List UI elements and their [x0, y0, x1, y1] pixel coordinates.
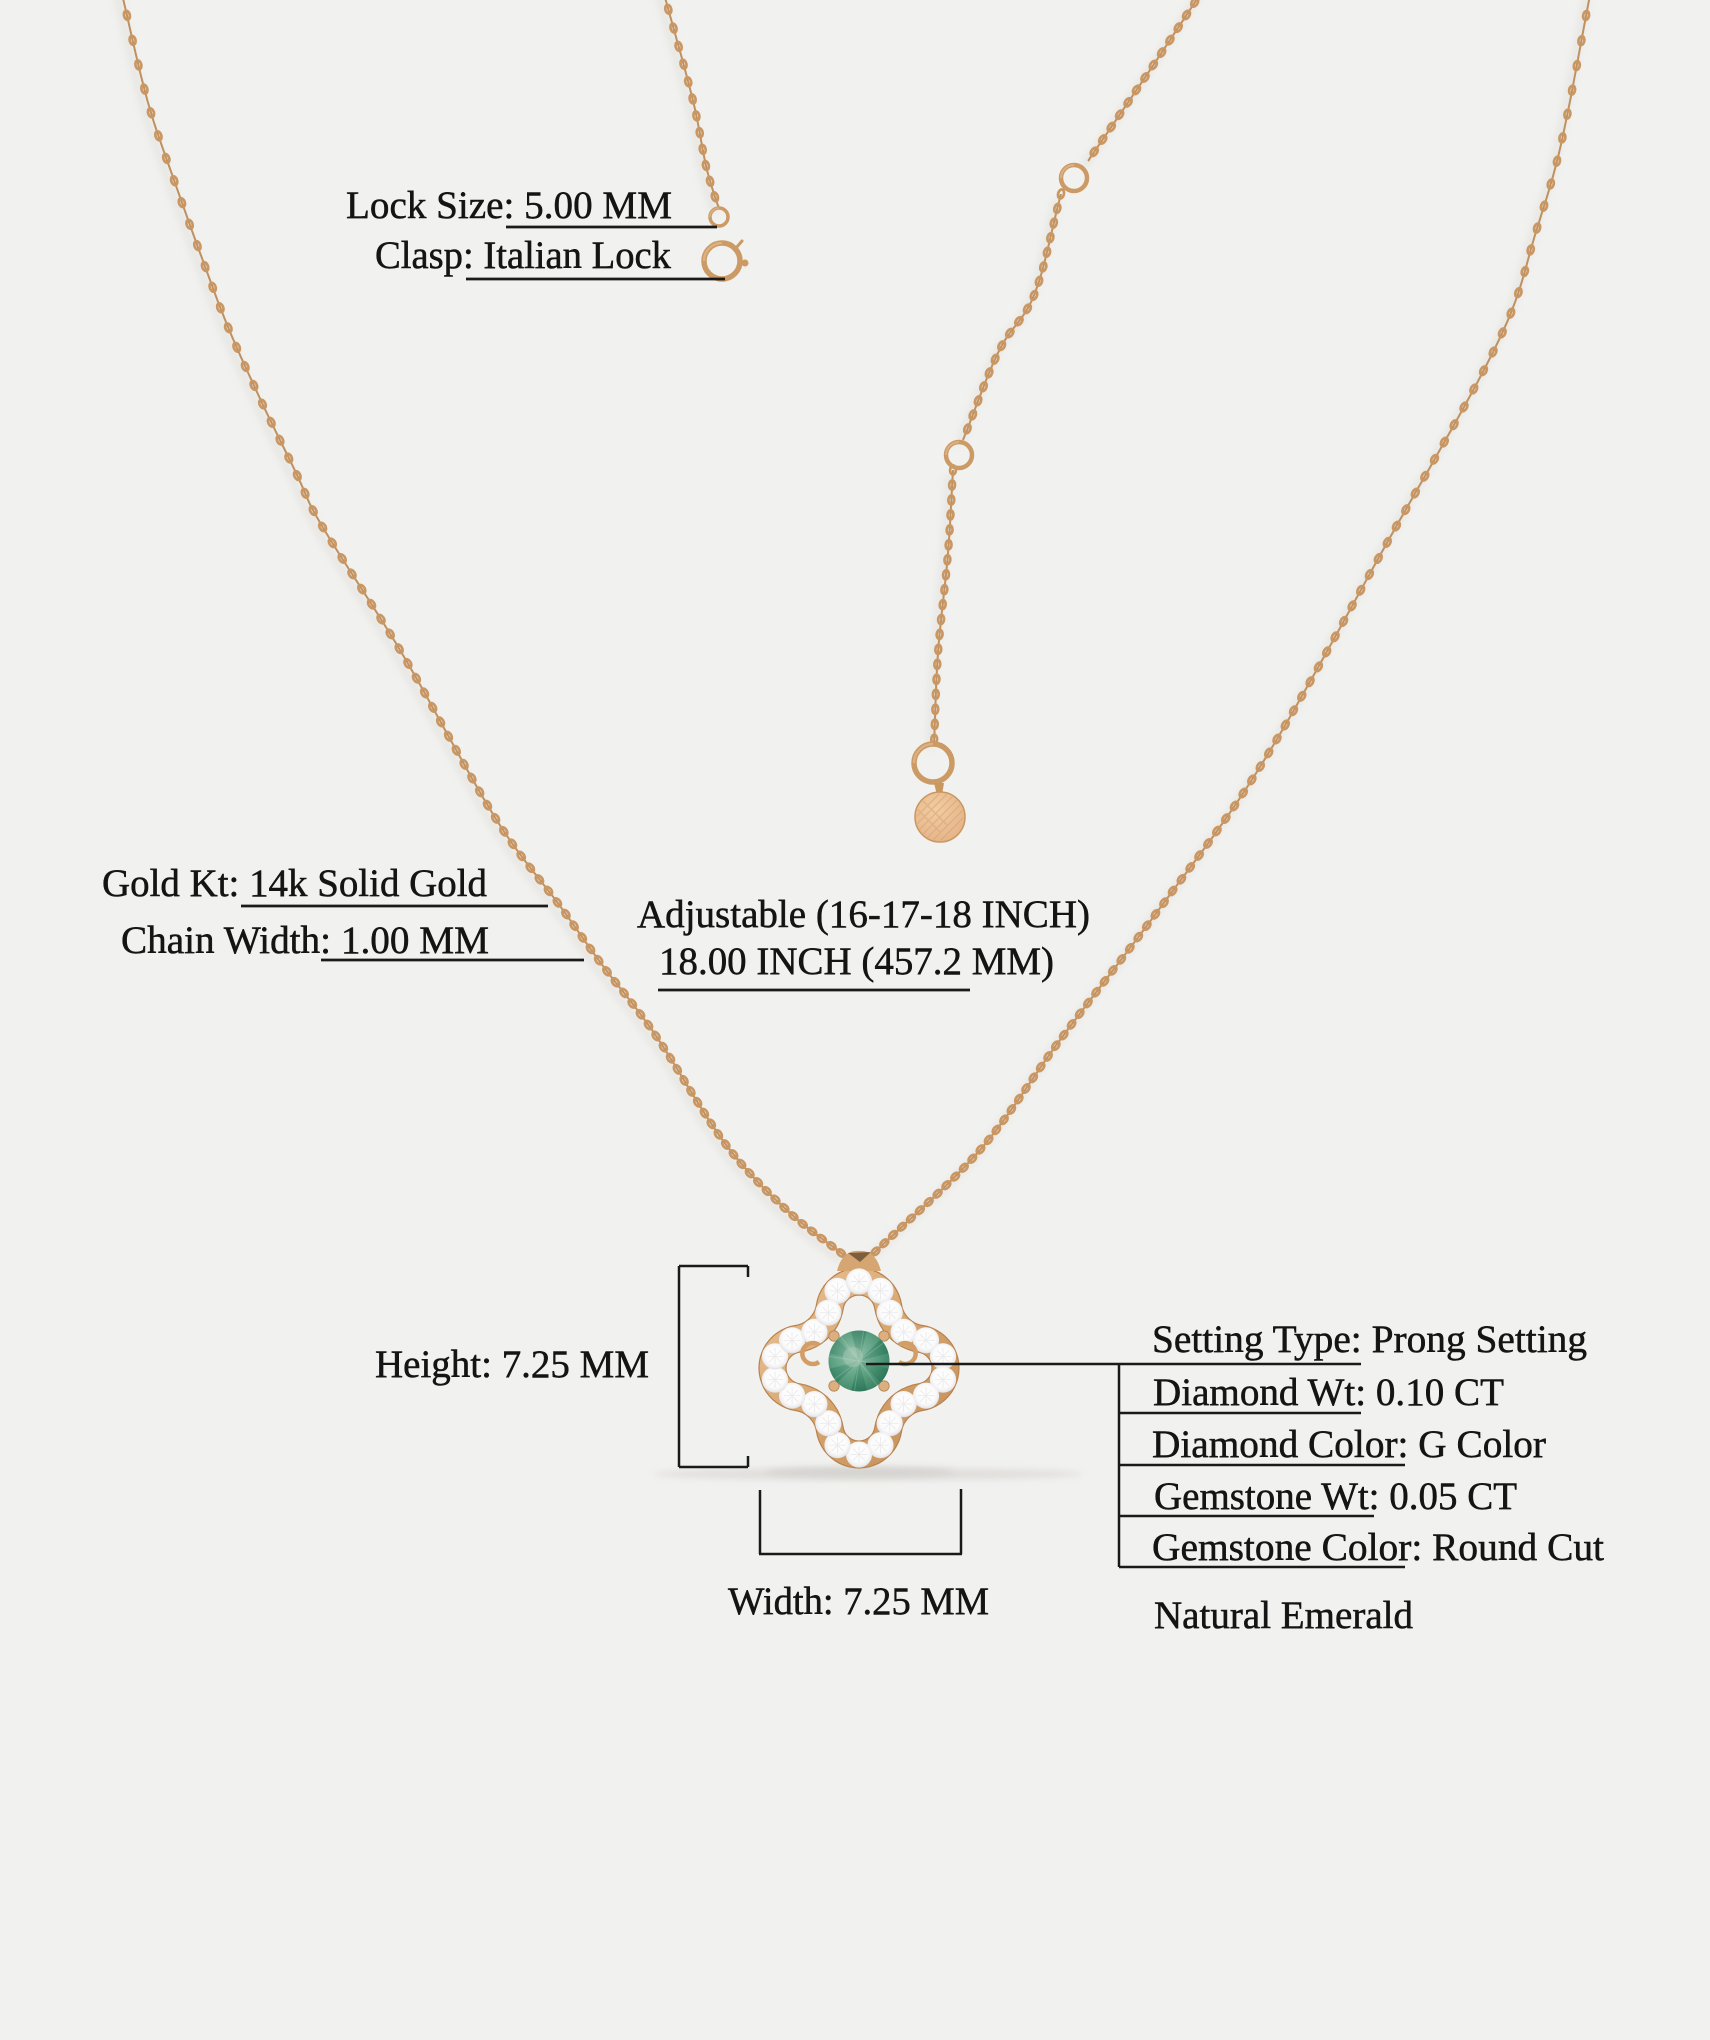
svg-text:Natural Emerald: Natural Emerald	[1154, 1594, 1413, 1637]
svg-text:Gold Kt: 14k Solid Gold: Gold Kt: 14k Solid Gold	[102, 862, 487, 905]
svg-text:Adjustable (16-17-18 INCH): Adjustable (16-17-18 INCH)	[637, 893, 1090, 936]
svg-text:Gemstone Wt: 0.05 CT: Gemstone Wt: 0.05 CT	[1154, 1475, 1517, 1518]
svg-text:Chain Width: 1.00 MM: Chain Width: 1.00 MM	[121, 919, 489, 962]
svg-text:Diamond Wt: 0.10 CT: Diamond Wt: 0.10 CT	[1153, 1371, 1504, 1414]
svg-text:Gemstone Color: Round Cut: Gemstone Color: Round Cut	[1152, 1526, 1604, 1569]
svg-text:18.00 INCH (457.2 MM): 18.00 INCH (457.2 MM)	[659, 940, 1054, 983]
svg-text:Lock Size: 5.00 MM: Lock Size: 5.00 MM	[346, 184, 672, 227]
svg-text:Clasp: Italian Lock: Clasp: Italian Lock	[375, 234, 671, 277]
svg-text:Height: 7.25 MM: Height: 7.25 MM	[375, 1343, 649, 1386]
svg-text:Width: 7.25 MM: Width: 7.25 MM	[728, 1580, 989, 1623]
svg-text:Setting Type: Prong Setting: Setting Type: Prong Setting	[1152, 1318, 1587, 1361]
svg-text:Diamond Color: G Color: Diamond Color: G Color	[1152, 1423, 1546, 1466]
